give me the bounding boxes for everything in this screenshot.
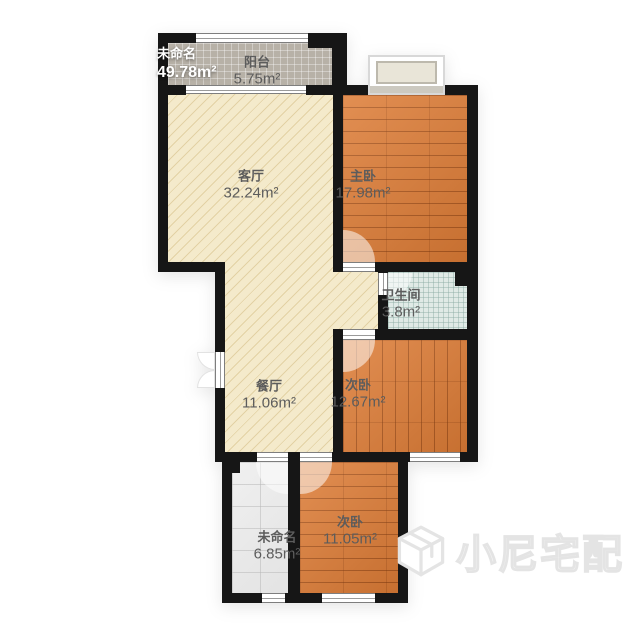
room-label-dining: 餐厅 11.06m² xyxy=(242,379,296,414)
wall-segment xyxy=(215,262,225,352)
wall-segment xyxy=(158,85,186,95)
third-bedroom-window xyxy=(322,593,375,603)
total-area-label: 未命名 49.78m² xyxy=(157,46,217,84)
room-label-unnamed: 未命名 6.85m² xyxy=(254,530,301,565)
wall-segment xyxy=(288,452,300,462)
third-bedroom-door-opening xyxy=(300,452,332,462)
entry-door-leaf-arc xyxy=(197,370,215,388)
room-label-second-bedroom: 次卧 12.67m² xyxy=(330,378,385,413)
room-label-balcony: 阳台 5.75m² xyxy=(234,55,281,90)
wall-segment xyxy=(375,329,478,340)
room-label-living: 客厅 32.24m² xyxy=(223,169,278,204)
bay-window-sill xyxy=(370,86,443,93)
wall-corner-block xyxy=(228,462,240,473)
room-label-master: 主卧 17.98m² xyxy=(335,169,390,204)
wall-segment xyxy=(285,593,322,603)
wall-segment xyxy=(222,452,232,603)
master-bedroom-door-opening xyxy=(343,262,375,272)
wall-pillar xyxy=(455,272,467,286)
wall-segment xyxy=(222,593,262,603)
entry-door-opening xyxy=(215,352,225,388)
second-bedroom-door-opening xyxy=(343,329,375,340)
floor-plan-image: 阳台 5.75m² 客厅 32.24m² 主卧 17.98m² 卫生间 3.8m… xyxy=(0,0,640,640)
bay-window xyxy=(368,55,445,95)
wall-segment xyxy=(375,262,478,272)
balcony-window xyxy=(196,33,308,43)
entry-door-leaf-arc xyxy=(197,352,215,370)
wall-segment xyxy=(460,452,478,462)
unnamed-room-window xyxy=(262,593,285,603)
watermark: 小尼宅配 xyxy=(394,522,624,580)
room-label-third-bedroom: 次卧 11.05m² xyxy=(323,515,377,550)
cube-logo-icon xyxy=(394,524,448,578)
wall-segment xyxy=(467,85,478,462)
wall-segment xyxy=(288,462,300,593)
second-bedroom-window xyxy=(410,452,460,462)
wall-segment xyxy=(333,262,343,272)
room-label-bathroom: 卫生间 3.8m² xyxy=(381,288,420,323)
bay-window-glass xyxy=(376,61,437,84)
wall-segment xyxy=(375,593,408,603)
wall-segment xyxy=(215,388,225,462)
wall-segment xyxy=(378,262,388,273)
watermark-text: 小尼宅配 xyxy=(456,522,624,580)
unnamed-room-door-opening xyxy=(257,452,288,462)
